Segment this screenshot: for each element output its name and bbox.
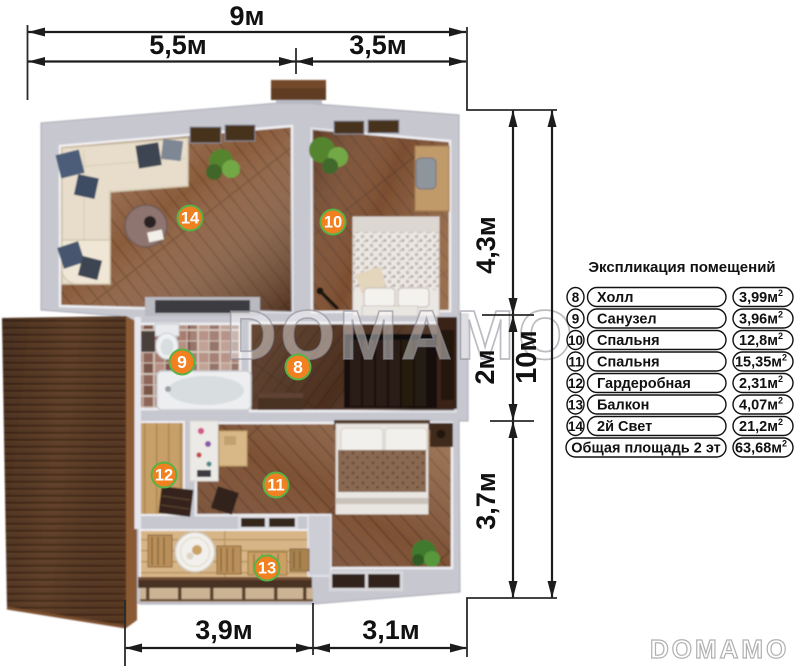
svg-text:12: 12: [568, 376, 583, 391]
svg-text:14: 14: [568, 419, 584, 434]
svg-text:2м: 2м: [470, 350, 500, 385]
svg-text:4,07м2: 4,07м2: [739, 396, 783, 414]
svg-text:9: 9: [177, 352, 187, 372]
svg-text:Холл: Холл: [597, 290, 633, 306]
svg-text:2й Свет: 2й Свет: [597, 419, 652, 435]
svg-text:11: 11: [267, 477, 284, 495]
svg-text:3,9м: 3,9м: [195, 615, 253, 645]
svg-text:8: 8: [572, 290, 580, 305]
svg-text:14: 14: [181, 210, 200, 228]
svg-text:13: 13: [258, 560, 276, 578]
svg-text:Спальня: Спальня: [597, 355, 660, 371]
svg-text:2,31м2: 2,31м2: [739, 374, 783, 392]
svg-text:3,99м2: 3,99м2: [739, 288, 783, 306]
svg-text:10: 10: [568, 333, 583, 348]
svg-text:10м: 10м: [511, 330, 543, 384]
svg-text:15,35м2: 15,35м2: [735, 353, 787, 371]
svg-text:21,2м2: 21,2м2: [739, 417, 783, 435]
svg-text:12: 12: [155, 467, 173, 485]
svg-text:12,8м2: 12,8м2: [739, 331, 783, 349]
svg-text:3,1м: 3,1м: [362, 615, 420, 645]
svg-text:8: 8: [293, 357, 303, 377]
svg-text:5,5м: 5,5м: [149, 30, 207, 60]
svg-text:DOMAMO: DOMAMO: [650, 634, 789, 664]
svg-text:4,3м: 4,3м: [471, 216, 501, 274]
svg-text:13: 13: [568, 398, 584, 413]
svg-text:63,68м2: 63,68м2: [735, 439, 787, 457]
svg-text:3,7м: 3,7м: [471, 472, 501, 530]
svg-text:Спальня: Спальня: [597, 333, 660, 349]
svg-text:9: 9: [572, 312, 580, 327]
svg-text:Санузел: Санузел: [597, 312, 657, 328]
svg-text:3,96м2: 3,96м2: [739, 310, 783, 328]
svg-text:3,5м: 3,5м: [349, 30, 407, 60]
svg-text:9м: 9м: [230, 1, 265, 31]
svg-text:Балкон: Балкон: [597, 398, 649, 414]
svg-text:11: 11: [568, 355, 583, 370]
svg-text:Экспликация помещений: Экспликация помещений: [588, 259, 775, 276]
svg-text:10: 10: [324, 214, 342, 232]
svg-text:Общая площадь 2 эт: Общая площадь 2 эт: [571, 441, 720, 457]
svg-text:Гардеробная: Гардеробная: [597, 376, 691, 392]
